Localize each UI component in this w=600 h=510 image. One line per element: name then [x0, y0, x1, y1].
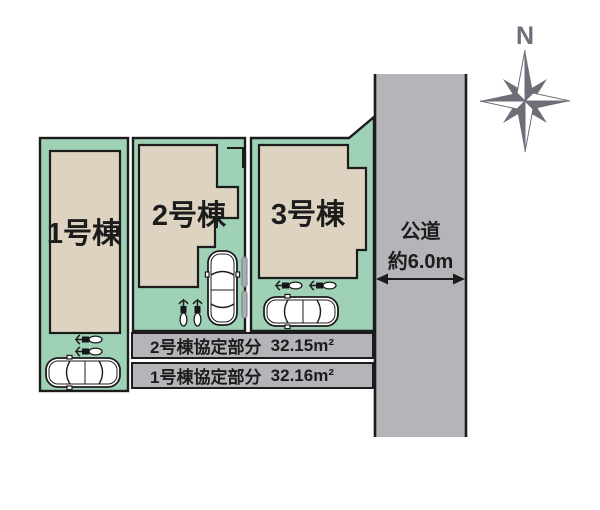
lot-1-label: 1号棟 [40, 220, 128, 249]
agreement-row: 2号棟協定部分 32.15m² [131, 332, 374, 359]
car-top-view-icon [264, 294, 338, 328]
agreement-row-area: 32.16m² [271, 366, 372, 386]
fence-strip [242, 257, 247, 287]
car-top-view-icon [46, 355, 120, 389]
lot-2-label: 2号棟 [133, 202, 245, 231]
road-width-label: 約6.0m [374, 252, 467, 272]
lot-3-label: 3号棟 [251, 201, 365, 230]
agreement-row-area: 32.15m² [271, 336, 372, 356]
agreement-row-label: 1号棟協定部分 [133, 363, 261, 388]
road-name-label: 公道 [374, 222, 467, 242]
agreement-row-label: 2号棟協定部分 [133, 333, 261, 358]
site-plan-drawing [0, 0, 600, 510]
agreement-row: 1号棟協定部分 32.16m² [131, 362, 374, 389]
compass-north-label: N [505, 24, 545, 49]
car-top-view-icon [205, 251, 239, 325]
site-plan-canvas: 1号棟 2号棟 3号棟 公道 約6.0m N 2号棟協定部分 32.15m² 1… [0, 0, 600, 510]
fence-strip [242, 291, 247, 318]
compass-rose-icon [480, 50, 570, 152]
